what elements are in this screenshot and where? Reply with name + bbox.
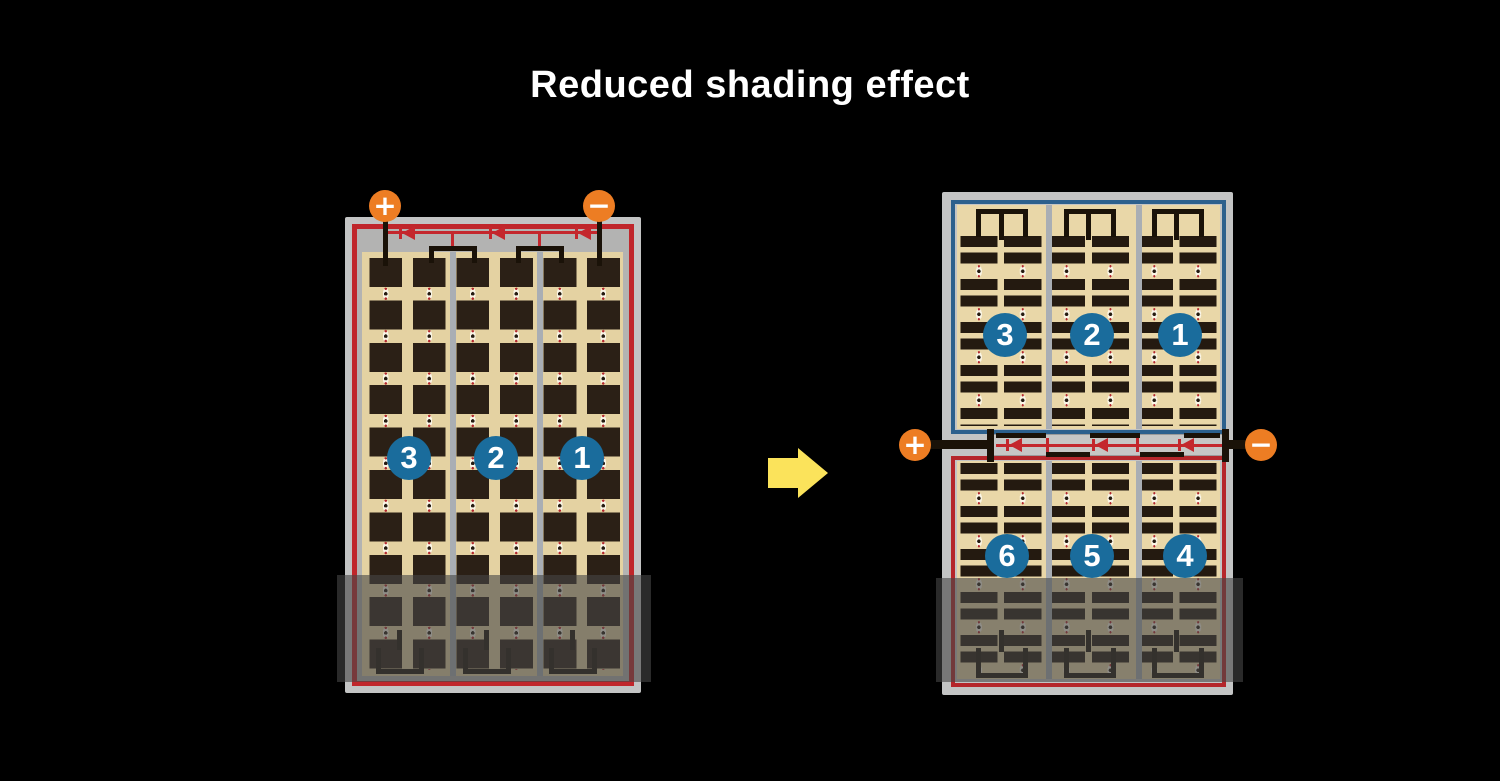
- split-module: 3 2 1 6 5 4 + −: [899, 192, 1279, 695]
- string-badge: 2: [474, 436, 518, 480]
- string-number: 3: [996, 317, 1013, 353]
- bypass-diode-icon: [1176, 438, 1196, 452]
- minus-terminal: −: [1245, 429, 1277, 461]
- plus-terminal: +: [369, 190, 401, 222]
- shading-overlay: [337, 575, 651, 682]
- string-number: 3: [400, 440, 417, 476]
- string-badge: 2: [1070, 313, 1114, 357]
- terminal-wire: [1227, 440, 1247, 449]
- top-interconnect: [516, 246, 564, 263]
- string-number: 2: [1083, 317, 1100, 353]
- top-interconnect-stem: [999, 214, 1004, 240]
- bypass-diode-icon: [573, 226, 593, 240]
- top-interconnect-stem: [1086, 214, 1091, 240]
- bus-bar: [1046, 452, 1090, 457]
- terminal-stem: [383, 220, 388, 266]
- string-badge: 3: [387, 436, 431, 480]
- diagram-canvas: Reduced shading effect 3 2 1: [0, 0, 1500, 781]
- bus-bar: [1140, 452, 1184, 457]
- diode-bus-tap: [1136, 438, 1139, 452]
- string-badge: 4: [1163, 534, 1207, 578]
- string-badge: 3: [983, 313, 1027, 357]
- top-interconnect-stem: [1174, 214, 1179, 240]
- minus-icon: −: [1249, 430, 1272, 460]
- minus-icon: −: [587, 191, 610, 221]
- top-interconnect: [429, 246, 477, 263]
- string-number: 1: [573, 440, 590, 476]
- minus-terminal: −: [583, 190, 615, 222]
- plus-icon: +: [903, 430, 926, 460]
- string-separator: [1136, 205, 1142, 429]
- string-badge: 1: [560, 436, 604, 480]
- string-separator: [1046, 205, 1052, 429]
- string-badge: 6: [985, 534, 1029, 578]
- string-number: 1: [1171, 317, 1188, 353]
- full-size-module: 3 2 1 + −: [337, 190, 651, 693]
- plus-icon: +: [373, 191, 396, 221]
- bypass-diode-icon: [397, 226, 417, 240]
- bypass-diode-icon: [1090, 438, 1110, 452]
- string-number: 6: [998, 538, 1015, 574]
- arrow-right-icon: [768, 448, 828, 498]
- terminal-wire: [930, 440, 990, 449]
- string-number: 2: [487, 440, 504, 476]
- shading-overlay: [936, 578, 1243, 682]
- string-badge: 1: [1158, 313, 1202, 357]
- plus-terminal: +: [899, 429, 931, 461]
- terminal-stem: [597, 220, 602, 266]
- string-number: 4: [1176, 538, 1193, 574]
- diode-bus-tap: [1046, 438, 1049, 452]
- page-title: Reduced shading effect: [0, 64, 1500, 107]
- string-number: 5: [1083, 538, 1100, 574]
- bypass-diode-icon: [1004, 438, 1024, 452]
- bypass-diode-icon: [487, 226, 507, 240]
- string-badge: 5: [1070, 534, 1114, 578]
